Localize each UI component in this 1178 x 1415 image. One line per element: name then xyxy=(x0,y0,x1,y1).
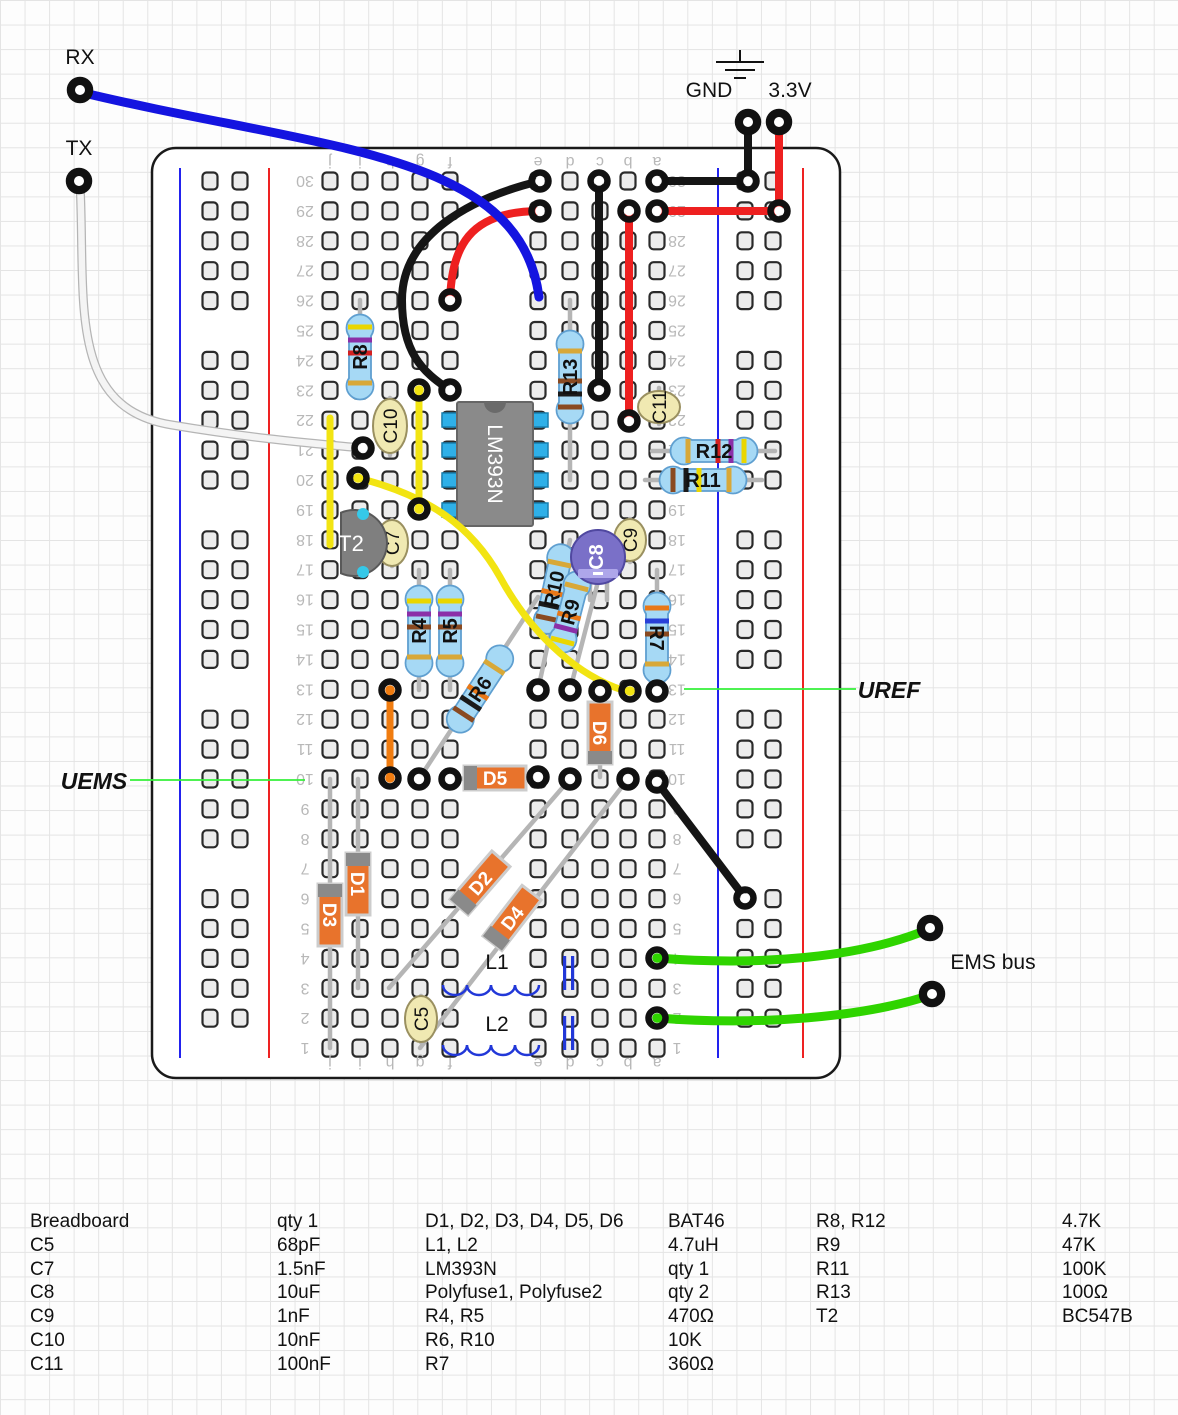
breadboard-hole xyxy=(413,800,428,817)
parts-list-name: L1, L2 xyxy=(425,1236,478,1255)
parts-list-name: C5 xyxy=(30,1236,54,1255)
breadboard-hole xyxy=(233,651,248,668)
polyfuse-bar xyxy=(571,1016,574,1050)
breadboard-hole xyxy=(413,711,428,728)
row-number: 5 xyxy=(672,920,681,937)
row-number: 22 xyxy=(296,411,314,428)
breadboard-hole xyxy=(413,741,428,758)
wire-junction-center xyxy=(595,686,605,696)
row-number: 12 xyxy=(296,710,314,727)
breadboard-hole xyxy=(443,531,458,548)
resistor-band-violet xyxy=(407,612,431,617)
row-number: 19 xyxy=(296,501,314,518)
column-letter: j xyxy=(328,1054,333,1071)
parts-list-name: R6, R10 xyxy=(425,1331,495,1350)
wire-junction-center xyxy=(743,176,753,186)
breadboard-hole xyxy=(621,711,636,728)
breadboard-hole xyxy=(621,950,636,967)
breadboard-hole xyxy=(383,651,398,668)
capacitor-C10: C10 xyxy=(373,399,407,453)
diode-D5: D5 xyxy=(464,766,526,790)
breadboard-hole xyxy=(413,920,428,937)
breadboard-hole xyxy=(443,232,458,249)
breadboard-hole xyxy=(650,292,665,309)
transistor-label: T2 xyxy=(338,531,364,556)
parts-list-name: R9 xyxy=(816,1236,840,1255)
breadboard-hole xyxy=(413,890,428,907)
resistor-label: R5 xyxy=(440,618,462,644)
wire-junction-center xyxy=(594,385,604,395)
breadboard-hole xyxy=(766,262,781,279)
wire-junction-center xyxy=(414,385,424,395)
column-letter: d xyxy=(566,153,575,170)
breadboard-hole xyxy=(650,980,665,997)
breadboard-hole xyxy=(563,711,578,728)
resistor-label: R8 xyxy=(350,344,372,370)
parts-list-value: 4.7K xyxy=(1062,1212,1101,1231)
breadboard-hole xyxy=(383,860,398,877)
row-number: 3 xyxy=(672,979,681,996)
breadboard-hole xyxy=(650,322,665,339)
breadboard-hole xyxy=(203,621,218,638)
row-number: 4 xyxy=(300,949,309,966)
ic-label: LM393N xyxy=(483,424,506,503)
breadboard-hole xyxy=(766,621,781,638)
breadboard-hole xyxy=(383,202,398,219)
label-ems_bus: EMS bus xyxy=(950,951,1035,974)
breadboard-hole xyxy=(203,771,218,788)
breadboard-hole xyxy=(621,621,636,638)
breadboard-hole xyxy=(621,860,636,877)
row-number: 11 xyxy=(297,740,314,757)
breadboard-hole xyxy=(353,681,368,698)
resistor-band-gold xyxy=(348,381,372,386)
breadboard-hole xyxy=(353,711,368,728)
breadboard-hole xyxy=(233,591,248,608)
breadboard-hole xyxy=(563,202,578,219)
breadboard-hole xyxy=(593,412,608,429)
row-number: 29 xyxy=(296,202,314,219)
breadboard-hole xyxy=(323,651,338,668)
breadboard-hole xyxy=(650,830,665,847)
breadboard-hole xyxy=(531,1010,546,1027)
breadboard-hole xyxy=(650,262,665,279)
parts-list-value: 47K xyxy=(1062,1236,1096,1255)
breadboard-hole xyxy=(621,173,636,190)
breadboard-hole xyxy=(563,173,578,190)
breadboard-hole xyxy=(738,830,753,847)
pad-center xyxy=(927,989,937,999)
breadboard-hole xyxy=(203,531,218,548)
column-letter: f xyxy=(447,1054,452,1071)
breadboard-hole xyxy=(203,232,218,249)
wire-junction-center xyxy=(445,295,455,305)
breadboard-hole xyxy=(353,173,368,190)
column-letter: g xyxy=(416,1054,425,1071)
row-number: 15 xyxy=(668,621,686,638)
breadboard-hole xyxy=(383,262,398,279)
row-number: 23 xyxy=(296,381,314,398)
row-number: 19 xyxy=(668,501,686,518)
breadboard-hole xyxy=(621,980,636,997)
column-letter: e xyxy=(533,1054,542,1071)
parts-list-name: LM393N xyxy=(425,1260,497,1279)
wire-junction-center xyxy=(594,176,604,186)
row-number: 6 xyxy=(300,890,309,907)
breadboard-hole xyxy=(233,232,248,249)
breadboard-hole xyxy=(233,442,248,459)
diode-cathode-band xyxy=(318,884,342,897)
parts-list-name: R8, R12 xyxy=(816,1212,886,1231)
parts-list-value: BC547B xyxy=(1062,1307,1133,1326)
wire-junction-center xyxy=(774,206,784,216)
diode-cathode-band xyxy=(588,751,612,764)
capacitor-label: C11 xyxy=(650,390,671,423)
row-number: 13 xyxy=(296,680,314,697)
breadboard-hole xyxy=(621,741,636,758)
breadboard-hole xyxy=(738,920,753,937)
wire-junction-center xyxy=(533,772,543,782)
row-number: 27 xyxy=(668,262,686,279)
breadboard-hole xyxy=(413,262,428,279)
parts-list-value: 100nF xyxy=(277,1355,331,1374)
resistor-band-yellow xyxy=(742,439,747,463)
breadboard-hole xyxy=(766,980,781,997)
breadboard-hole xyxy=(766,292,781,309)
breadboard-hole xyxy=(531,860,546,877)
breadboard-hole xyxy=(413,322,428,339)
parts-list-value: 10nF xyxy=(277,1331,320,1350)
label-uems: UEMS xyxy=(61,768,128,794)
breadboard-hole xyxy=(593,621,608,638)
breadboard-hole xyxy=(203,711,218,728)
row-number: 11 xyxy=(669,740,686,757)
breadboard-hole xyxy=(383,591,398,608)
resistor-label: R4 xyxy=(409,617,431,643)
breadboard-hole xyxy=(443,800,458,817)
breadboard-hole xyxy=(531,352,546,369)
breadboard-hole xyxy=(593,980,608,997)
breadboard-hole xyxy=(531,741,546,758)
pad-ems-2 xyxy=(923,985,941,1003)
breadboard-hole xyxy=(383,890,398,907)
breadboard-hole xyxy=(766,382,781,399)
breadboard-hole xyxy=(593,890,608,907)
breadboard-hole xyxy=(383,501,398,518)
row-number: 24 xyxy=(296,351,314,368)
breadboard-hole xyxy=(443,860,458,877)
parts-list-value: 1.5nF xyxy=(277,1260,326,1279)
diode-cathode-band xyxy=(464,766,477,790)
electrolytic-minus xyxy=(593,572,603,575)
breadboard-hole xyxy=(443,830,458,847)
breadboard-hole xyxy=(443,322,458,339)
wire-junction-center xyxy=(445,385,455,395)
breadboard-hole xyxy=(738,591,753,608)
ground-symbol xyxy=(716,50,764,78)
breadboard-hole xyxy=(233,262,248,279)
breadboard-hole xyxy=(621,501,636,518)
breadboard-hole xyxy=(650,920,665,937)
wire-junction-center xyxy=(445,774,455,784)
breadboard-hole xyxy=(323,382,338,399)
row-number: 8 xyxy=(672,830,681,847)
breadboard-hole xyxy=(650,711,665,728)
breadboard-hole xyxy=(203,262,218,279)
row-number: 17 xyxy=(668,561,686,578)
polyfuse-bar xyxy=(563,1016,566,1050)
breadboard-hole xyxy=(323,741,338,758)
pad-rx xyxy=(71,81,89,99)
breadboard-hole xyxy=(353,651,368,668)
row-number: 2 xyxy=(300,1009,309,1026)
row-number: 24 xyxy=(668,351,686,368)
column-letter: j xyxy=(328,153,333,170)
breadboard-hole xyxy=(738,531,753,548)
parts-list-name: Polyfuse1, Polyfuse2 xyxy=(425,1283,602,1302)
breadboard-hole xyxy=(738,741,753,758)
breadboard-diagram: 1122334455667788991010111112121313141415… xyxy=(0,0,1178,1415)
parts-list-name: Breadboard xyxy=(30,1212,129,1231)
pad-center xyxy=(743,117,753,127)
breadboard-hole xyxy=(593,651,608,668)
breadboard-hole xyxy=(233,352,248,369)
breadboard-hole xyxy=(738,412,753,429)
breadboard-hole xyxy=(383,292,398,309)
breadboard-hole xyxy=(233,412,248,429)
breadboard-hole xyxy=(593,950,608,967)
breadboard-hole xyxy=(323,681,338,698)
column-letter: c xyxy=(596,153,604,170)
breadboard-hole xyxy=(383,232,398,249)
transistor-pin xyxy=(357,508,369,520)
capacitor-C8: C8 xyxy=(571,530,625,584)
row-number: 13 xyxy=(668,680,686,697)
breadboard-hole xyxy=(323,232,338,249)
breadboard-hole xyxy=(323,292,338,309)
row-number: 14 xyxy=(296,650,314,667)
breadboard-hole xyxy=(233,920,248,937)
breadboard-hole xyxy=(203,352,218,369)
row-number: 6 xyxy=(672,890,681,907)
breadboard-hole xyxy=(563,800,578,817)
breadboard-hole xyxy=(593,860,608,877)
resistor-band-yellow xyxy=(348,325,372,330)
breadboard-hole xyxy=(766,412,781,429)
row-number: 27 xyxy=(296,262,314,279)
capacitor-C11: C11 xyxy=(638,390,680,423)
breadboard-hole xyxy=(353,741,368,758)
breadboard-hole xyxy=(203,382,218,399)
parts-list-name: R13 xyxy=(816,1283,851,1302)
parts-list-value: 4.7uH xyxy=(668,1236,719,1255)
parts-list-value: 470Ω xyxy=(668,1307,714,1326)
breadboard-hole xyxy=(563,232,578,249)
wire-junction-center xyxy=(535,176,545,186)
resistor-R11: R11 xyxy=(660,467,747,494)
breadboard-hole xyxy=(738,382,753,399)
row-number: 1 xyxy=(300,1039,309,1056)
resistor-band-gold xyxy=(645,662,669,667)
breadboard-hole xyxy=(353,232,368,249)
column-letter: h xyxy=(386,1054,395,1071)
breadboard-hole xyxy=(650,800,665,817)
breadboard-hole xyxy=(650,741,665,758)
breadboard-hole xyxy=(766,531,781,548)
breadboard-hole xyxy=(766,890,781,907)
breadboard-hole xyxy=(233,472,248,489)
parts-list-name: C8 xyxy=(30,1283,54,1302)
breadboard-hole xyxy=(593,442,608,459)
resistor-band-gold xyxy=(558,349,582,354)
breadboard-hole xyxy=(593,501,608,518)
row-number: 5 xyxy=(300,920,309,937)
parts-list-value: BAT46 xyxy=(668,1212,725,1231)
row-number: 25 xyxy=(668,322,686,339)
breadboard-hole xyxy=(593,472,608,489)
breadboard-hole xyxy=(738,651,753,668)
breadboard-hole xyxy=(353,412,368,429)
row-number: 28 xyxy=(668,232,686,249)
breadboard-hole xyxy=(203,442,218,459)
breadboard-hole xyxy=(738,232,753,249)
resistor-band-yellow xyxy=(438,599,462,604)
breadboard-hole xyxy=(203,173,218,190)
breadboard-hole xyxy=(203,741,218,758)
capacitor-label: C10 xyxy=(381,409,402,444)
parts-list-value: qty 1 xyxy=(668,1260,709,1279)
breadboard-hole xyxy=(650,232,665,249)
diagram-svg: 1122334455667788991010111112121313141415… xyxy=(0,0,1178,1415)
label-tx: TX xyxy=(66,137,93,160)
row-number: 9 xyxy=(300,800,309,817)
breadboard-hole xyxy=(766,591,781,608)
resistor-band-gold xyxy=(727,468,732,492)
parts-list-value: 10uF xyxy=(277,1283,320,1302)
breadboard-hole xyxy=(531,830,546,847)
breadboard-hole xyxy=(203,800,218,817)
column-letter: c xyxy=(596,1054,604,1071)
breadboard-hole xyxy=(383,621,398,638)
breadboard-hole xyxy=(233,771,248,788)
column-letter: f xyxy=(447,153,452,170)
parts-list-name: C11 xyxy=(30,1355,63,1374)
wire-junction-center xyxy=(740,893,750,903)
breadboard-hole xyxy=(353,591,368,608)
wire-junction-center xyxy=(385,773,395,783)
wire-junction-center xyxy=(652,953,662,963)
row-number: 28 xyxy=(296,232,314,249)
row-number: 25 xyxy=(296,322,314,339)
diode-label: D6 xyxy=(588,721,609,745)
capacitor-label: C5 xyxy=(412,1007,433,1031)
row-number: 17 xyxy=(296,561,314,578)
parts-list-value: 68pF xyxy=(277,1236,320,1255)
breadboard-hole xyxy=(323,352,338,369)
breadboard-hole xyxy=(766,830,781,847)
parts-list-value: 100Ω xyxy=(1062,1283,1108,1302)
breadboard-hole xyxy=(323,561,338,578)
breadboard-hole xyxy=(353,1010,368,1027)
label-uref: UREF xyxy=(858,677,922,703)
breadboard-hole xyxy=(383,830,398,847)
breadboard-hole xyxy=(353,262,368,279)
breadboard-hole xyxy=(766,741,781,758)
column-letter: b xyxy=(623,1054,632,1071)
wire-junction-center xyxy=(624,416,634,426)
breadboard-hole xyxy=(203,561,218,578)
column-letter: i xyxy=(358,1054,362,1071)
row-number: 14 xyxy=(668,650,686,667)
wire-junction-center xyxy=(624,206,634,216)
breadboard-hole xyxy=(531,920,546,937)
row-number: 16 xyxy=(296,591,314,608)
wire-junction-center xyxy=(565,685,575,695)
breadboard-hole xyxy=(621,591,636,608)
breadboard-hole xyxy=(233,980,248,997)
breadboard-hole xyxy=(650,531,665,548)
breadboard-hole xyxy=(563,890,578,907)
wire-junction-center xyxy=(652,176,662,186)
resistor-band-violet xyxy=(438,612,462,617)
resistor-R13: R13 xyxy=(557,331,584,424)
breadboard-hole xyxy=(650,501,665,518)
resistor-R7: R7 xyxy=(644,593,671,684)
pad-center xyxy=(74,176,84,186)
diode-D6: D6 xyxy=(588,702,612,764)
breadboard-hole xyxy=(650,860,665,877)
breadboard-hole xyxy=(766,561,781,578)
resistor-band-blue xyxy=(645,619,669,624)
resistor-band-brown xyxy=(671,468,676,492)
breadboard-hole xyxy=(383,800,398,817)
parts-list-name: R11 xyxy=(816,1260,849,1279)
breadboard-hole xyxy=(766,920,781,937)
polyfuse-bar xyxy=(571,956,574,990)
breadboard-hole xyxy=(738,352,753,369)
wire-junction-center xyxy=(652,686,662,696)
breadboard-hole xyxy=(203,950,218,967)
breadboard-hole xyxy=(203,830,218,847)
breadboard-hole xyxy=(621,800,636,817)
resistor-label: R13 xyxy=(560,359,582,396)
breadboard-hole xyxy=(593,920,608,937)
breadboard-hole xyxy=(443,950,458,967)
breadboard-hole xyxy=(323,262,338,279)
breadboard-hole xyxy=(413,202,428,219)
breadboard-hole xyxy=(323,202,338,219)
wire-junction-center xyxy=(652,1013,662,1023)
wire-junction-center xyxy=(353,473,363,483)
resistor-label: R7 xyxy=(645,625,667,651)
breadboard-hole xyxy=(233,950,248,967)
breadboard-hole xyxy=(738,711,753,728)
breadboard-hole xyxy=(233,1010,248,1027)
breadboard-hole xyxy=(621,472,636,489)
wire-junction-center xyxy=(623,774,633,784)
breadboard-hole xyxy=(738,621,753,638)
diode-D3: D3 xyxy=(318,884,342,946)
resistor-label: R12 xyxy=(696,441,733,463)
breadboard-hole xyxy=(766,771,781,788)
breadboard-hole xyxy=(383,352,398,369)
pad-33v xyxy=(770,113,788,131)
label-gnd: GND xyxy=(686,79,733,102)
breadboard-hole xyxy=(203,651,218,668)
breadboard-hole xyxy=(766,800,781,817)
resistor-band-gold xyxy=(438,655,462,660)
inductor-label: L1 xyxy=(485,951,508,974)
